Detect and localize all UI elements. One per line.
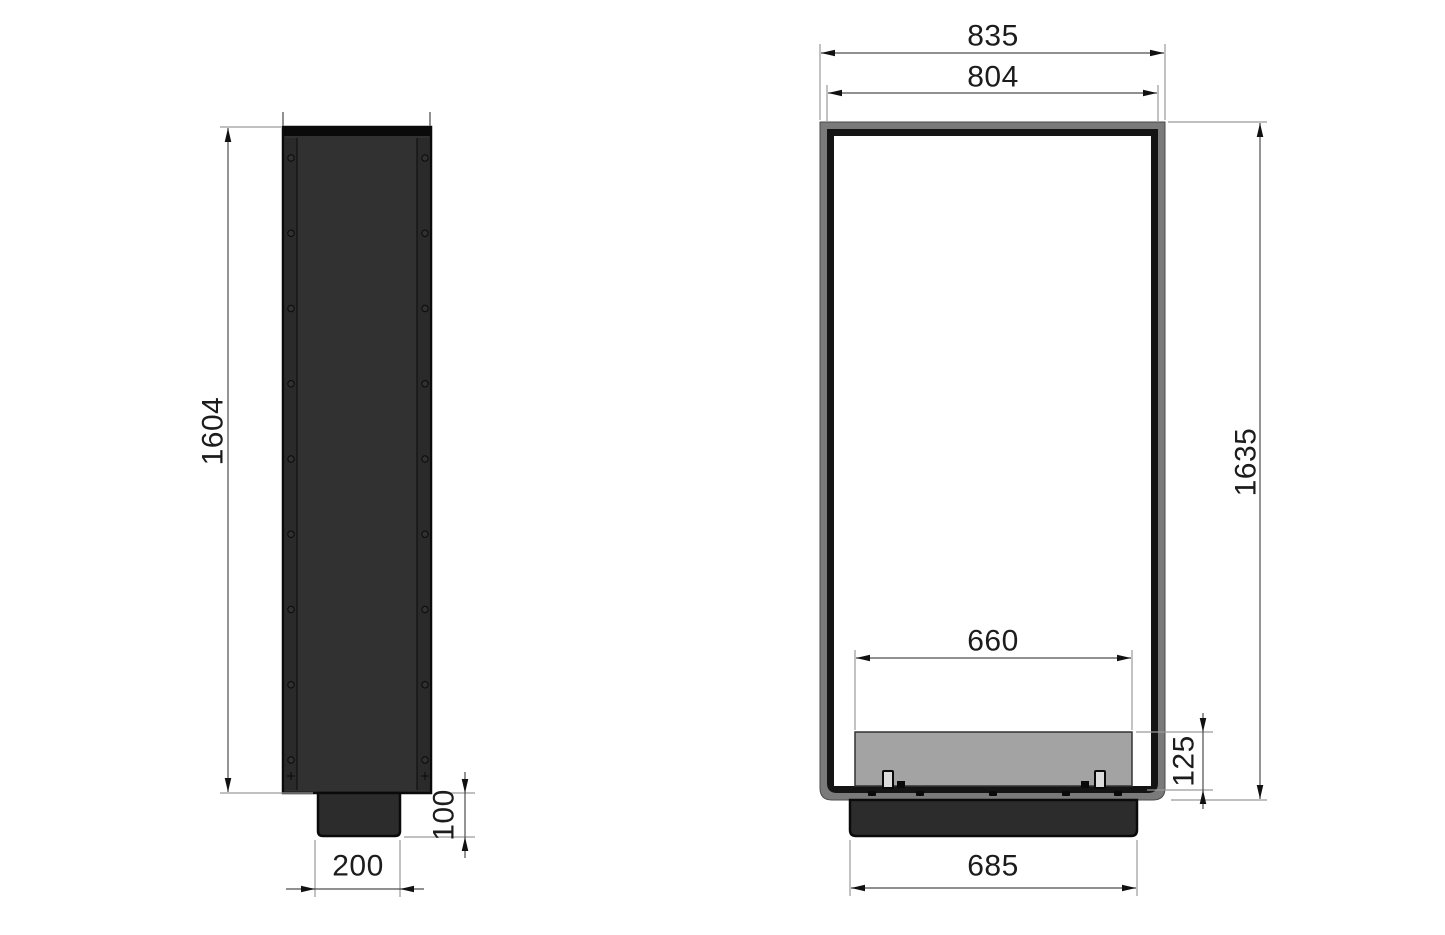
burner-knob-right [1081,781,1089,788]
dim-label-side-height: 1604 [197,397,230,466]
arrowhead-icon [1200,718,1207,732]
screw-hole-icon [422,305,428,311]
side-view-top-edge [283,127,431,136]
dim-label-front-base-width: 685 [967,850,1019,883]
floor-screw-icon [1062,791,1070,796]
floor-screw-icon [1114,791,1122,796]
screw-hole-icon [288,305,294,311]
front-view-base-pedestal [850,800,1137,836]
front-view-opening [834,136,1151,786]
burner-clip-right [1095,771,1105,788]
arrowhead-icon [1143,90,1157,97]
arrowhead-icon [828,90,842,97]
side-view [283,112,431,836]
screw-hole-icon [422,230,428,236]
screw-hole-icon [288,757,294,763]
floor-screw-icon [916,791,924,796]
dim-label-front-outer-width: 835 [967,20,1019,53]
arrowhead-icon [301,886,315,893]
floor-screw-icon [868,791,876,796]
dim-label-side-base-height: 100 [428,789,461,841]
screw-hole-icon [422,456,428,462]
arrowhead-icon [1257,123,1264,137]
screw-hole-icon [288,230,294,236]
arrowhead-icon [851,885,865,892]
screw-hole-icon [422,606,428,612]
screw-hole-icon [288,155,294,161]
screw-hole-icon [288,682,294,688]
arrowhead-icon [462,779,469,793]
screw-hole-icon [288,531,294,537]
burner-tray [855,732,1132,786]
burner-clip-left [883,771,893,788]
arrowhead-icon [1200,790,1207,804]
screw-hole-icon [422,682,428,688]
screw-hole-icon [288,381,294,387]
dim-side-base-width: 200 [286,840,424,897]
dim-front-height: 1635 [1168,122,1267,800]
drawing-svg: 1604 100 200 [0,0,1445,935]
screw-hole-icon [422,757,428,763]
screw-hole-icon [422,531,428,537]
screw-hole-icon [288,606,294,612]
dim-front-opening-width: 804 [827,61,1158,122]
dim-label-front-opening-width: 804 [967,61,1019,94]
arrowhead-icon [1122,885,1136,892]
arrowhead-icon [225,128,232,142]
dim-label-side-base-width: 200 [332,850,384,883]
dim-label-burner-height: 125 [1168,735,1201,787]
arrowhead-icon [1257,785,1264,799]
front-view [820,122,1165,836]
floor-screw-icon [989,791,997,796]
side-view-body [283,127,431,793]
screw-hole-icon [422,381,428,387]
arrowhead-icon [400,886,414,893]
arrowhead-icon [225,778,232,792]
technical-drawing-page: 1604 100 200 [0,0,1445,935]
screw-hole-icon [422,155,428,161]
screw-hole-icon [288,456,294,462]
dim-label-burner-width: 660 [967,625,1019,658]
burner-knob-left [897,781,905,788]
arrowhead-icon [462,837,469,851]
arrowhead-icon [821,50,835,57]
arrowhead-icon [1150,50,1164,57]
dim-label-front-height: 1635 [1230,428,1263,497]
side-view-base-pedestal [318,793,400,836]
dim-front-base-width: 685 [850,840,1137,896]
